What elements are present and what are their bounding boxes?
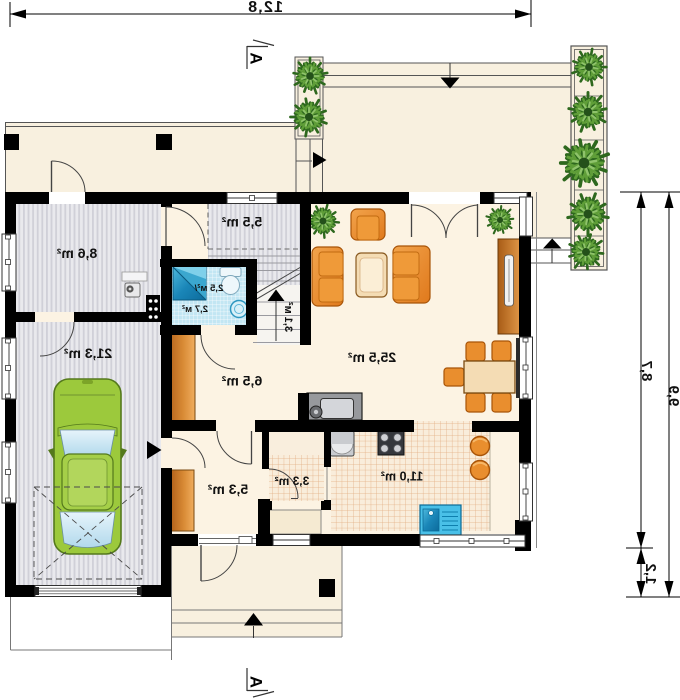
svg-text:2,5 м²/: 2,5 м²/	[194, 283, 223, 294]
svg-text:1,2: 1,2	[642, 564, 659, 585]
svg-text:9,9: 9,9	[665, 386, 680, 407]
svg-text:2,7 м²: 2,7 м²	[182, 304, 208, 315]
svg-text:12,8: 12,8	[247, 0, 283, 16]
svg-text:5,5 m²: 5,5 m²	[221, 214, 262, 230]
svg-text:8,7: 8,7	[638, 361, 655, 382]
svg-text:3,1 м²: 3,1 м²	[282, 302, 294, 332]
svg-text:5,3 m²: 5,3 m²	[207, 481, 248, 497]
svg-text:11,0 m²: 11,0 m²	[381, 470, 423, 484]
svg-text:25,5 m²: 25,5 m²	[348, 349, 397, 365]
svg-text:A: A	[247, 676, 265, 688]
svg-text:A: A	[247, 53, 265, 65]
svg-text:3,3 m²: 3,3 m²	[275, 474, 310, 488]
svg-text:8,6 m²: 8,6 m²	[56, 245, 97, 261]
svg-text:21,3 m²: 21,3 m²	[64, 345, 113, 361]
svg-text:6,5 m²: 6,5 m²	[221, 373, 262, 389]
